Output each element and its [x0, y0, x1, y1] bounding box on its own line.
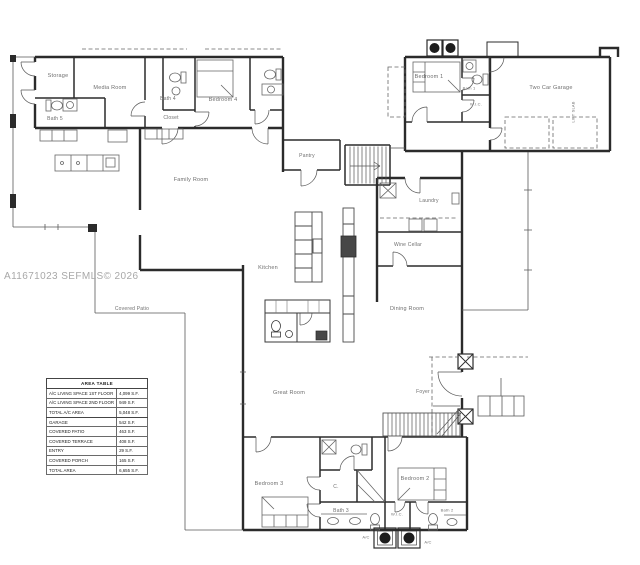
area-table-row: A/C LIVING SPACE 2ND FLOOR949 S.F. — [47, 398, 148, 408]
area-table-row: COVERED PATIO463 S.F. — [47, 427, 148, 437]
area-row-name: TOTAL A/C AREA — [47, 408, 117, 418]
area-row-value: 6,655 S.F. — [117, 465, 148, 475]
area-row-name: TOTAL AREA — [47, 465, 117, 475]
area-table-row: COVERED TERRACE408 S.F. — [47, 436, 148, 446]
area-row-value: 463 S.F. — [117, 427, 148, 437]
area-table-row: COVERED PORCH165 S.F. — [47, 456, 148, 466]
dashed-lines — [82, 49, 597, 437]
area-table: AREA TABLE A/C LIVING SPACE 1ST FLOOR4,0… — [46, 378, 148, 475]
mls-watermark: A11671023 SEFMLS© 2026 — [4, 271, 138, 282]
stair-foyer — [383, 406, 461, 436]
area-table-row: TOTAL AREA6,655 S.F. — [47, 465, 148, 475]
area-row-value: 165 S.F. — [117, 456, 148, 466]
area-table-row: A/C LIVING SPACE 1ST FLOOR4,099 S.F. — [47, 389, 148, 399]
floor-plan-drawing — [0, 0, 640, 565]
area-row-value: 5,048 S.F. — [117, 408, 148, 418]
area-row-name: COVERED PATIO — [47, 427, 117, 437]
area-row-name: ENTRY — [47, 446, 117, 456]
floor-plan-sheet: StorageMedia RoomBath 5Bath 4ClosetBedro… — [0, 0, 640, 565]
area-row-name: COVERED PORCH — [47, 456, 117, 466]
area-row-name: COVERED TERRACE — [47, 436, 117, 446]
area-row-name: A/C LIVING SPACE 1ST FLOOR — [47, 389, 117, 399]
area-row-name: A/C LIVING SPACE 2ND FLOOR — [47, 398, 117, 408]
area-row-name: GARAGE — [47, 417, 117, 427]
area-table-header: AREA TABLE — [47, 379, 148, 389]
area-table-row: ENTRY29 S.F. — [47, 446, 148, 456]
area-table-row: TOTAL A/C AREA5,048 S.F. — [47, 408, 148, 418]
area-row-value: 408 S.F. — [117, 436, 148, 446]
posts — [10, 55, 97, 232]
area-row-value: 542 S.F. — [117, 417, 148, 427]
kitchen-island — [295, 208, 356, 342]
area-table-row: GARAGE542 S.F. — [47, 417, 148, 427]
area-table-title: AREA TABLE — [47, 379, 148, 389]
powder-rooms — [265, 300, 330, 342]
area-row-value: 949 S.F. — [117, 398, 148, 408]
area-row-value: 29 S.F. — [117, 446, 148, 456]
area-row-value: 4,099 S.F. — [117, 389, 148, 399]
